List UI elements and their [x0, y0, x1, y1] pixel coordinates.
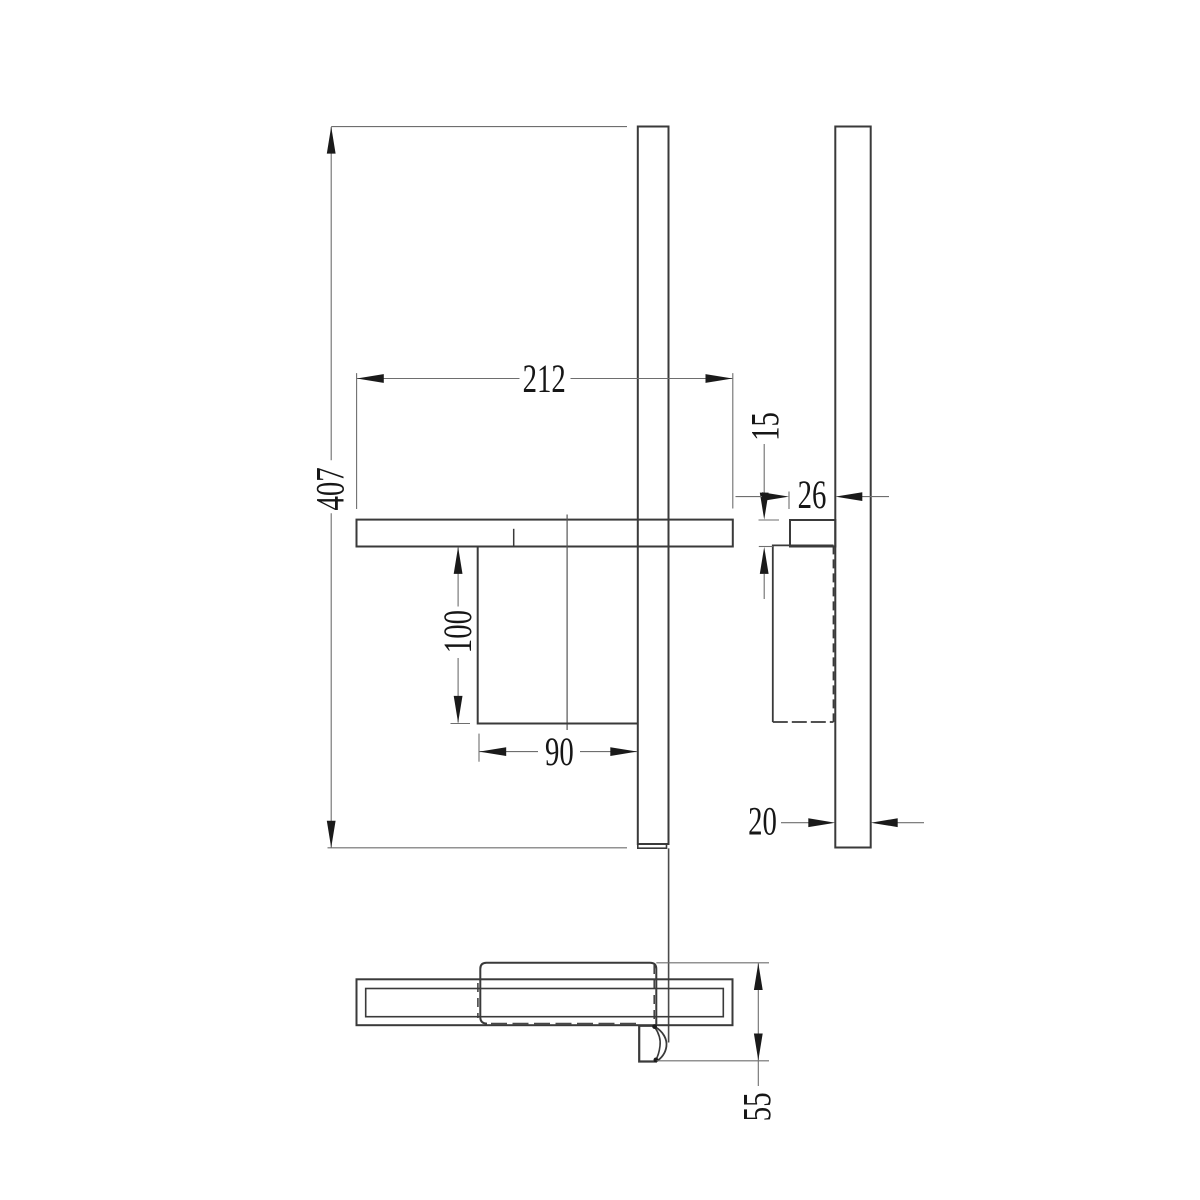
svg-text:20: 20 — [748, 799, 777, 844]
svg-text:26: 26 — [798, 473, 827, 518]
svg-text:212: 212 — [523, 356, 566, 401]
svg-text:90: 90 — [545, 729, 574, 774]
svg-text:55: 55 — [735, 1092, 780, 1121]
svg-text:407: 407 — [308, 467, 353, 510]
svg-text:15: 15 — [743, 412, 788, 441]
svg-text:100: 100 — [435, 610, 480, 653]
